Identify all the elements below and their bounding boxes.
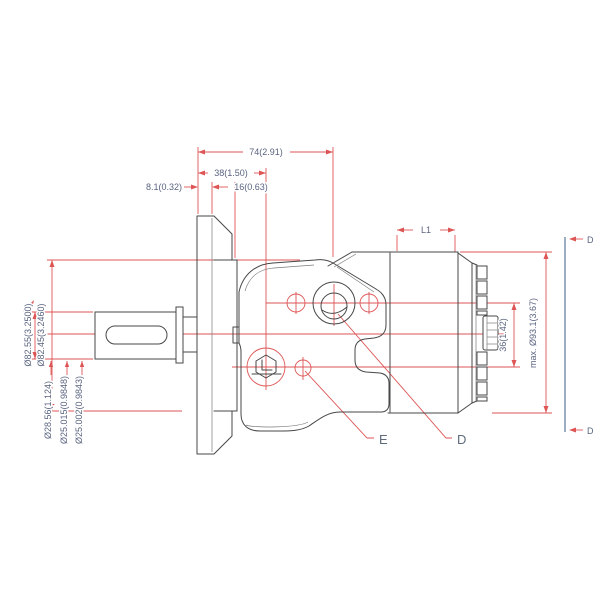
section-d-top-label: D bbox=[587, 235, 594, 245]
dim-36-label: 36(1.42) bbox=[498, 318, 508, 352]
drain-port-boss bbox=[483, 316, 498, 350]
dim-28-56-label: Ø28.56(1.124) bbox=[43, 381, 53, 439]
port-e-label: E bbox=[379, 432, 388, 447]
dim-25-002-label: Ø25.002(0.9843) bbox=[74, 376, 84, 444]
dim-74-label: 74(2.91) bbox=[249, 147, 283, 157]
dim-93-1-label: max. Ø93.1(3.67) bbox=[528, 298, 538, 368]
port-d-label: D bbox=[457, 432, 466, 447]
dim-8-1-label: 8.1(0.32) bbox=[146, 182, 182, 192]
dim-82-55-label: Ø82.55(3.2500) bbox=[23, 303, 33, 366]
section-d-bottom-label: D bbox=[587, 426, 594, 436]
motor-dimension-drawing: 74(2.91) 38(1.50) 8.1(0.32) 16(0.63) L1 … bbox=[0, 0, 600, 600]
end-cover bbox=[458, 253, 498, 413]
technical-drawing-page: 74(2.91) 38(1.50) 8.1(0.32) 16(0.63) L1 … bbox=[0, 0, 600, 600]
dimension-lines bbox=[23, 147, 583, 438]
shaft-keyway bbox=[106, 326, 167, 344]
shaft-collar bbox=[176, 307, 183, 363]
port-d-leader bbox=[338, 314, 452, 438]
dim-38-label: 38(1.50) bbox=[214, 168, 248, 178]
dim-l1-label: L1 bbox=[421, 225, 431, 235]
motor-body-cylinder bbox=[328, 252, 458, 413]
dim-16-label: 16(0.63) bbox=[234, 182, 268, 192]
dim-82-45-label: Ø82.45(3.2460) bbox=[36, 303, 46, 366]
dim-25-015-label: Ø25.015(0.9848) bbox=[59, 376, 69, 444]
dimension-labels: 74(2.91) 38(1.50) 8.1(0.32) 16(0.63) L1 … bbox=[23, 147, 594, 447]
mounting-flange bbox=[197, 216, 237, 454]
port-e-leader bbox=[305, 371, 374, 438]
port-e-hex-plug bbox=[252, 355, 281, 378]
